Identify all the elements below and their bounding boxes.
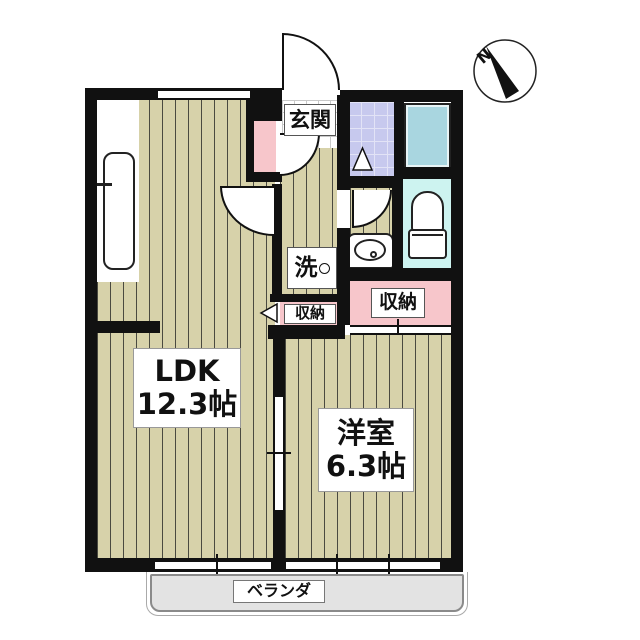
entrance-label-text: 玄関: [289, 108, 331, 132]
kitchen-sink: [103, 152, 135, 270]
wall-above-small-closet: [270, 294, 340, 302]
bathtub: [404, 103, 451, 169]
ldk-label: LDK 12.3帖: [133, 348, 241, 428]
ldk-label-line2: 12.3帖: [137, 388, 238, 421]
shoe-cabinet: [254, 121, 276, 172]
toilet-seat-line: [412, 234, 443, 236]
closet-small-label-text: 収納: [295, 305, 325, 322]
window-bottom-right: [286, 560, 440, 571]
toilet-bowl: [411, 191, 444, 233]
veranda-label-text: ベランダ: [247, 582, 311, 600]
veranda-label: ベランダ: [233, 580, 325, 603]
washroom-doorway: [337, 190, 350, 228]
washbasin-drain: [370, 251, 377, 258]
wall-entrance-chunk-bottom: [246, 172, 282, 182]
wall-entrance-chunk-left: [246, 95, 254, 182]
wall-kitchen-stub: [85, 321, 160, 333]
wall-under-basin: [337, 268, 463, 281]
sliding-door-tick: [267, 452, 291, 454]
sliding-door-closet: [350, 325, 451, 335]
wall-bath-tub-divider: [394, 95, 404, 177]
western-room-label-line2: 6.3帖: [326, 450, 406, 483]
bath-door-triangle-icon: [352, 147, 373, 171]
wall-right: [451, 90, 463, 572]
western-room-label-line1: 洋室: [337, 417, 395, 450]
compass: N: [470, 36, 540, 106]
laundry-label-text: 洗: [295, 255, 318, 281]
wall-bath-bottom: [345, 176, 397, 188]
wall-toilet-left: [392, 179, 403, 268]
ldk-label-line1: LDK: [154, 355, 219, 388]
kitchen-tap-icon: [97, 183, 112, 186]
washbasin-bowl: [354, 239, 386, 261]
sliding-door-tick: [397, 319, 399, 335]
closet-arrow-icon: [260, 303, 278, 323]
wall-below-small-closet: [268, 325, 345, 339]
wall-tub-toilet: [394, 167, 463, 179]
western-room-label: 洋室 6.3帖: [318, 408, 414, 492]
window-top: [158, 90, 250, 99]
closet-large-label: 収納: [371, 288, 425, 318]
window-bottom-left: [155, 560, 271, 571]
closet-large-label-text: 収納: [379, 292, 417, 314]
floor-plan: 玄関 洗 収納 収納 LDK 12.3帖 洋室 6.3帖 ベランダ N: [0, 0, 640, 640]
entrance-label: 玄関: [284, 104, 336, 136]
washing-machine-circle-icon: [319, 263, 330, 274]
closet-small-label: 収納: [284, 304, 336, 324]
entrance-door-arc: [282, 33, 340, 90]
laundry-label: 洗: [287, 247, 337, 289]
